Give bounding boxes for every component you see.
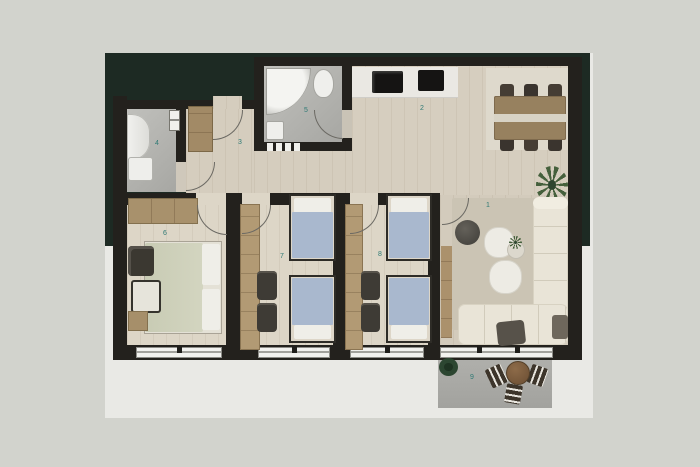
armchair — [128, 246, 154, 276]
balcony-chair — [504, 383, 523, 404]
window-bedroom-2 — [258, 347, 330, 358]
room-number-balcony: 9 — [466, 374, 478, 381]
desk-chair — [361, 271, 380, 300]
room-number-bedroom-2: 7 — [276, 253, 288, 260]
balcony-table — [506, 361, 530, 385]
wall-bedroom2-bedroom3 — [333, 193, 345, 360]
window-master-bedroom — [136, 347, 222, 358]
balcony-plant-pot — [439, 358, 458, 376]
washbasin-2 — [266, 121, 284, 140]
sofa-throw-blanket — [496, 320, 526, 347]
desk-chair — [257, 303, 277, 332]
duvet-blue — [292, 278, 333, 325]
room-number-bathroom-1: 4 — [151, 140, 163, 147]
window-mullion — [292, 346, 297, 353]
single-bed — [388, 277, 430, 341]
toilet — [313, 69, 334, 98]
wall-outer-right — [568, 57, 582, 360]
sofa-cushion-dark — [552, 315, 568, 339]
desk-chair — [361, 303, 380, 332]
radiator — [169, 110, 180, 131]
duvet-blue — [389, 278, 429, 325]
sofa-armrest — [533, 197, 568, 209]
pillow — [202, 289, 220, 330]
room-number-bathroom-2: 5 — [300, 107, 312, 114]
wall-bathroom-2-right-top — [342, 57, 352, 110]
entrance-threshold — [213, 96, 242, 109]
bathroom-1-door-threshold — [176, 162, 186, 192]
room-number-hallway: 3 — [234, 139, 246, 146]
coffee-table — [455, 220, 480, 245]
room-number-kitchen: 2 — [416, 105, 428, 112]
duvet-blue — [389, 212, 429, 258]
floor-plan-photo-scene: 1 2 3 4 5 6 7 8 9 — [0, 0, 700, 467]
wall-outer-left — [113, 96, 127, 360]
duvet-blue — [292, 212, 333, 258]
hall-cabinet — [188, 106, 213, 152]
corridor-floor — [254, 151, 352, 195]
dining-table — [494, 96, 566, 140]
window-mullion — [477, 346, 482, 353]
window-mullion — [385, 346, 390, 353]
kitchen-sink — [418, 70, 444, 91]
room-number-master-bedroom: 6 — [159, 230, 171, 237]
window-mullion — [515, 346, 520, 353]
floor-plan: 1 2 3 4 5 6 7 8 9 — [0, 0, 700, 467]
pillow — [202, 244, 220, 285]
wall-outer-top — [254, 57, 582, 66]
sliding-door-balcony — [440, 347, 553, 358]
nightstand — [128, 311, 148, 331]
radiator-2 — [267, 143, 301, 151]
washbasin — [128, 157, 153, 181]
desk-chair — [257, 271, 277, 300]
chair-light — [131, 280, 161, 313]
wall-step-vertical — [254, 57, 264, 151]
window-mullion — [177, 346, 182, 353]
table-runner — [494, 114, 566, 122]
pillow — [391, 325, 427, 339]
single-bed — [388, 196, 430, 259]
pouf — [489, 260, 522, 294]
pillow — [294, 198, 331, 213]
cooktop — [372, 71, 403, 93]
wall-master-bedroom2 — [226, 193, 240, 360]
pillow — [294, 325, 331, 339]
side-table-plant — [509, 236, 522, 249]
single-bed — [291, 196, 334, 259]
room-number-bedroom-3: 8 — [374, 251, 386, 258]
bathroom-2-door-threshold — [342, 110, 352, 138]
single-bed — [291, 277, 334, 341]
pillow — [391, 198, 427, 213]
master-bedroom-door-threshold — [196, 193, 226, 205]
room-number-living: 1 — [482, 202, 494, 209]
sideboard — [441, 246, 452, 338]
wardrobe-master — [128, 198, 198, 224]
